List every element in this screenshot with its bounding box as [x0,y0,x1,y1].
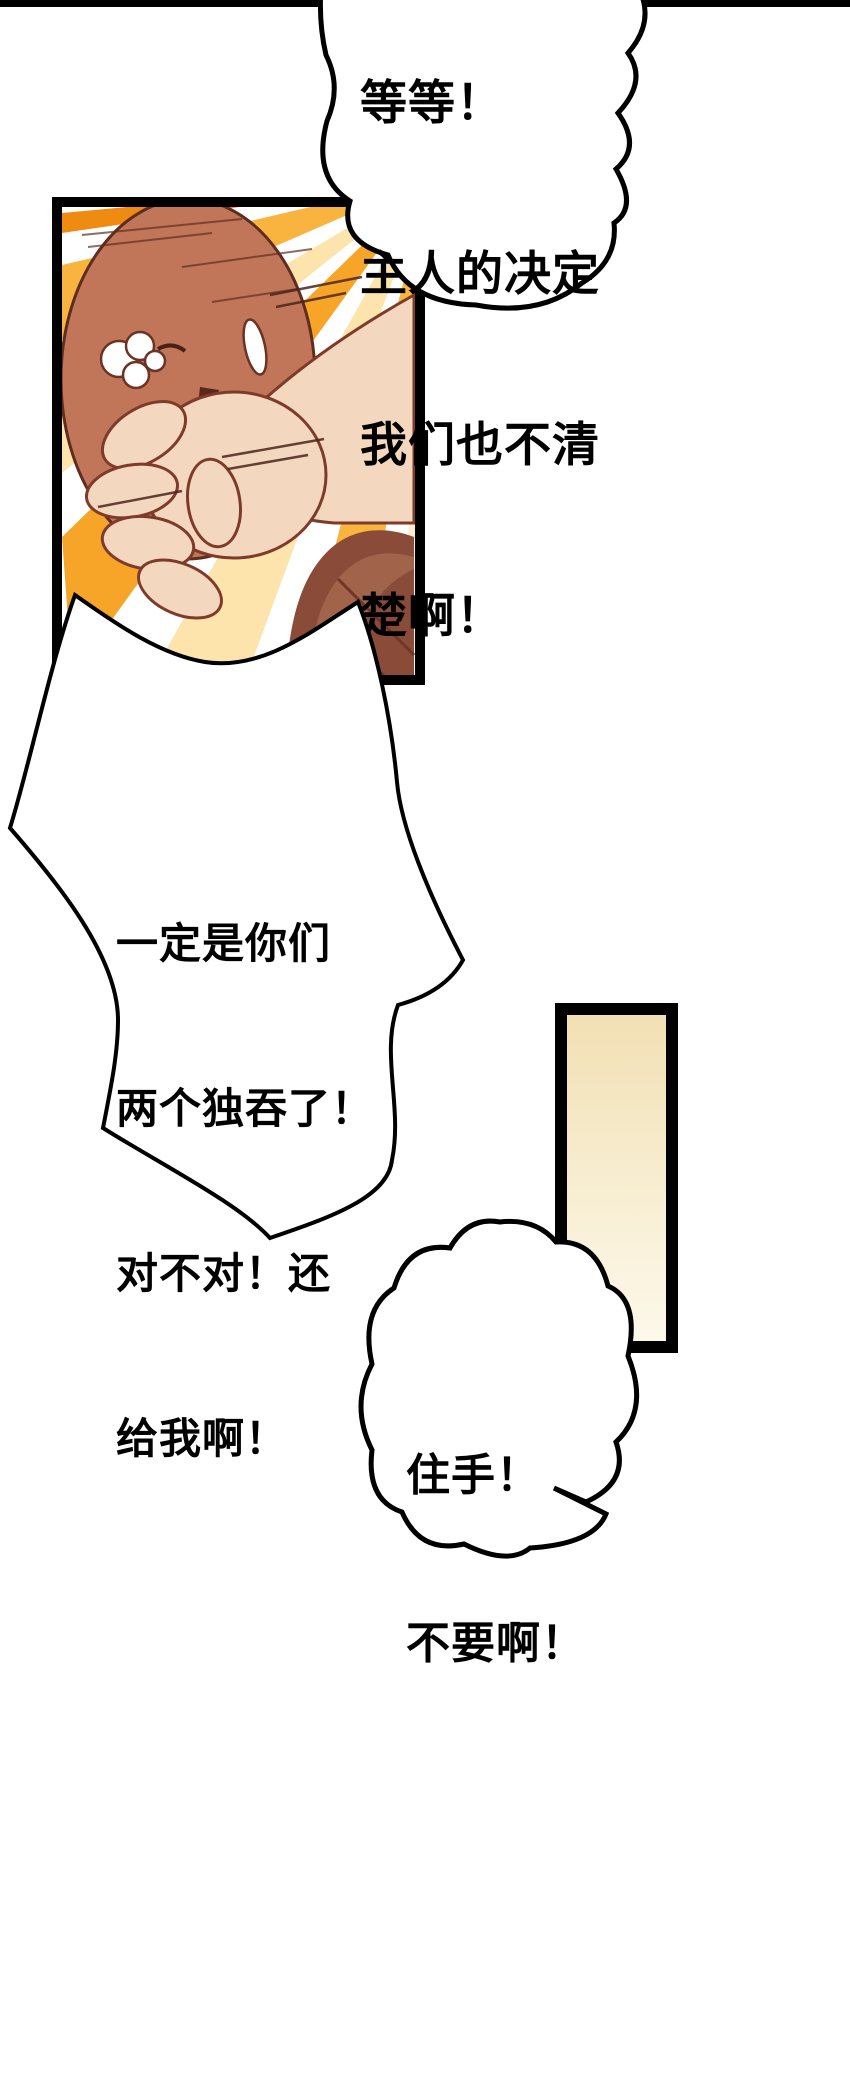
speech-line: 两个独吞了！ [116,1081,374,1136]
speech-line: 给我啊！ [116,1411,374,1466]
speech-line: 一定是你们 [116,916,374,971]
speech-bubble-middle-text: 一定是你们 两个独吞了！ 对不对！还 给我啊！ [116,806,374,1576]
speech-line: 主人的决定 [360,245,600,302]
speech-line: 我们也不清 [360,416,600,473]
speech-line: 不要啊！ [406,1616,586,1672]
speech-bubble-small-text: 住手！ 不要啊！ [406,1336,586,1784]
speech-line: 住手！ [406,1448,586,1504]
comic-page: 等等！ 主人的决定 我们也不清 楚啊！ 一定是你们 两个独吞了！ 对不对！还 给… [0,0,850,2088]
speech-line: 等等！ [360,74,600,131]
speech-line: 对不对！还 [116,1246,374,1301]
